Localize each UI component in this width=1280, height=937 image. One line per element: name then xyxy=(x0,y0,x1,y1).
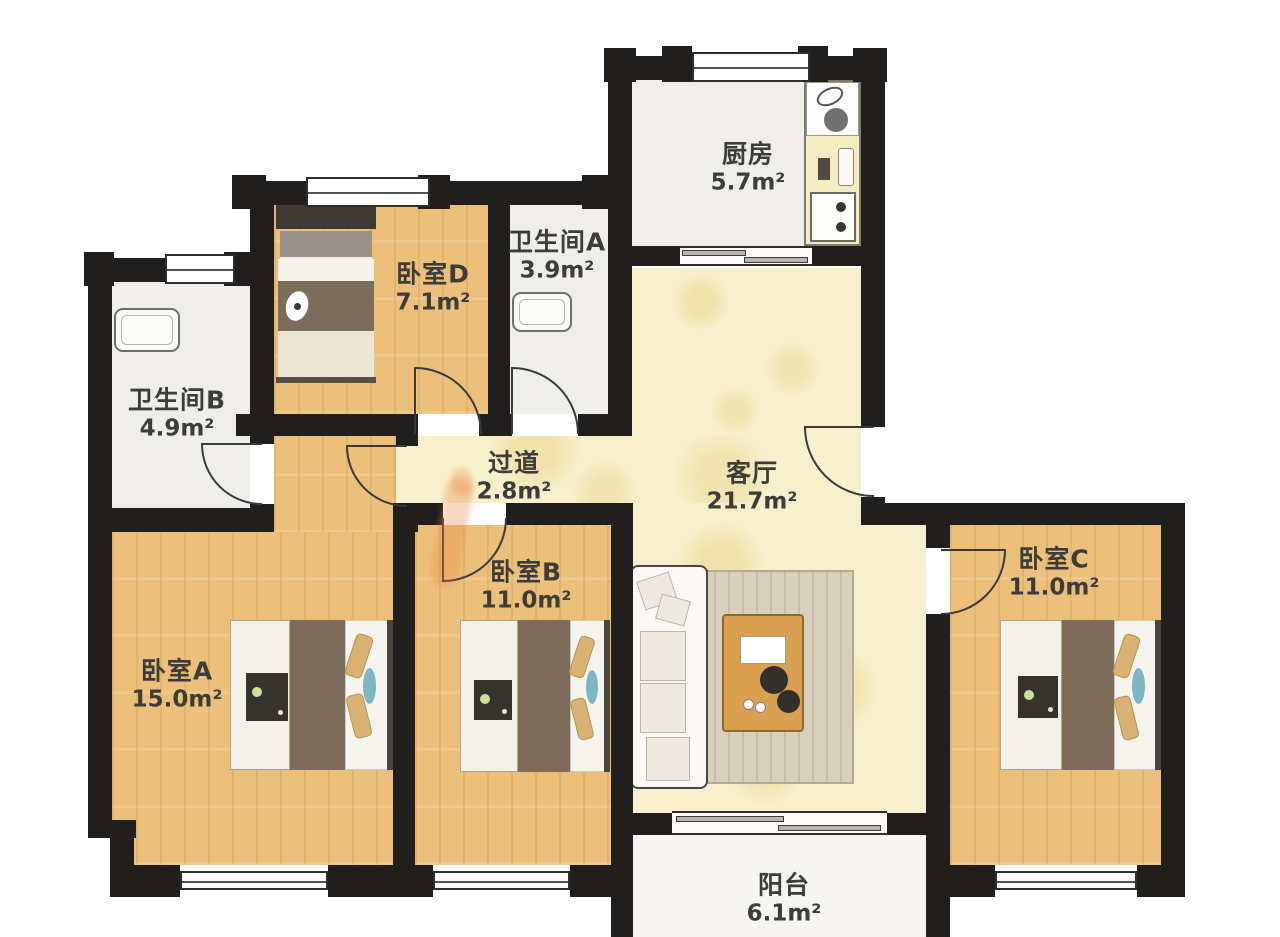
room-area: 4.9m² xyxy=(128,415,226,441)
room-label-balcony: 阳台 6.1m² xyxy=(747,871,822,926)
door-arc-entry xyxy=(805,427,874,496)
room-label-bedroom-b: 卧室B 11.0m² xyxy=(481,558,572,613)
room-name: 卧室C xyxy=(1009,545,1100,574)
room-name: 卧室D xyxy=(396,260,471,289)
room-label-bedroom-d: 卧室D 7.1m² xyxy=(396,260,471,315)
room-name: 过道 xyxy=(477,449,552,478)
room-area: 11.0m² xyxy=(1009,574,1100,600)
door-arc-bedroom-a xyxy=(347,446,407,506)
room-name: 卧室B xyxy=(481,558,572,587)
room-label-living-room: 客厅 21.7m² xyxy=(707,459,798,514)
room-name: 客厅 xyxy=(707,459,798,488)
room-area: 6.1m² xyxy=(747,900,822,926)
room-name: 卫生间B xyxy=(128,386,226,415)
room-area: 5.7m² xyxy=(711,169,786,195)
room-area: 7.1m² xyxy=(396,289,471,315)
room-label-kitchen: 厨房 5.7m² xyxy=(711,140,786,195)
door-arc-bathroom-a xyxy=(512,368,578,434)
room-label-bedroom-c: 卧室C 11.0m² xyxy=(1009,545,1100,600)
room-label-bathroom-b: 卫生间B 4.9m² xyxy=(128,386,226,441)
room-area: 21.7m² xyxy=(707,488,798,514)
door-arc-bedroom-c xyxy=(941,550,1005,614)
room-name: 卧室A xyxy=(132,657,223,686)
room-area: 11.0m² xyxy=(481,587,572,613)
room-name: 厨房 xyxy=(711,140,786,169)
room-area: 2.8m² xyxy=(477,478,552,504)
room-label-bedroom-a: 卧室A 15.0m² xyxy=(132,657,223,712)
door-arc-bedroom-d xyxy=(415,368,481,434)
room-area: 3.9m² xyxy=(508,257,606,283)
room-label-hallway: 过道 2.8m² xyxy=(477,449,552,504)
room-area: 15.0m² xyxy=(132,686,223,712)
floor-plan: 厨房 5.7m² 卫生间A 3.9m² 卧室D 7.1m² 卫生间B 4.9m²… xyxy=(0,0,1280,937)
room-name: 阳台 xyxy=(747,871,822,900)
room-name: 卫生间A xyxy=(508,228,606,257)
door-arc-bathroom-b xyxy=(202,444,262,504)
room-label-bathroom-a: 卫生间A 3.9m² xyxy=(508,228,606,283)
door-swings xyxy=(0,0,1280,937)
